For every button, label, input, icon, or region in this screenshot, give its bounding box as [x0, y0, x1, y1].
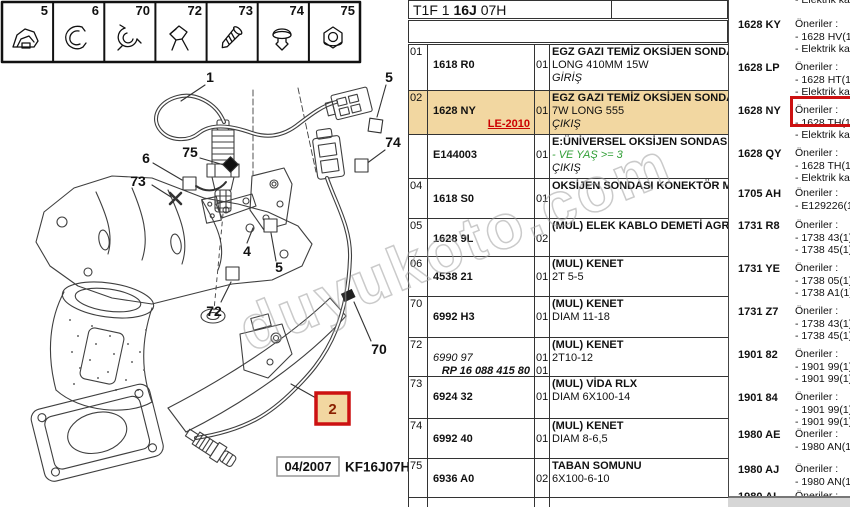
quantity: 02 — [536, 233, 549, 246]
description-line: TABAN SOMUNU — [552, 460, 740, 473]
description-line: DIAM 8-6,5 — [552, 433, 740, 446]
suggestion-code: 1901 82 — [738, 349, 778, 361]
quantity — [536, 378, 549, 391]
spacer — [433, 92, 532, 105]
quantity: 01 — [536, 193, 549, 206]
description-line: (MUL) KENET — [552, 339, 740, 352]
callout-2-highlighted[interactable]: 2 — [316, 393, 349, 424]
parts-table-rows: 011618 R001EGZ GAZI TEMİZ OKSİJEN SONDAS… — [408, 44, 742, 507]
icon-strip: 5 6 70 72 73 74 75 — [2, 2, 360, 62]
suggestion-code: 1980 AJ — [738, 464, 779, 476]
suggestion-code: 1901 84 — [738, 392, 778, 404]
suggestion-partial-top: - Elektrik kablo — [795, 0, 850, 6]
description-line: 7W LONG 555 — [552, 105, 740, 118]
part-reference: 6990 97 — [433, 352, 532, 365]
header-divider — [611, 1, 612, 18]
oxygen-sensor-upper — [207, 120, 239, 310]
suggestion-line: - 1901 99(1) O — [795, 373, 850, 386]
description-line: (MUL) VİDA RLX — [552, 378, 740, 391]
suggestion-line: - 1738 45(1) + — [795, 330, 850, 343]
row-number: 05 — [410, 220, 425, 233]
icon-number: 5 — [41, 3, 48, 18]
header-code-part3: 07H — [481, 2, 507, 18]
quantity: 01 — [536, 311, 549, 324]
part-reference-extra: RP 16 088 415 80 — [433, 365, 532, 376]
suggestion-code: 1731 Z7 — [738, 306, 778, 318]
catalytic-converter — [29, 277, 165, 484]
suggestion-line: - 1628 HV(1) — [795, 31, 850, 44]
table-row[interactable]: 746992 4001(MUL) KENETDIAM 8-6,5 — [408, 419, 742, 459]
part-reference: 1628 NY — [433, 105, 532, 118]
spacer — [433, 378, 532, 391]
suggestion-line: - Elektrik kablo — [795, 129, 850, 142]
description-line: ÇIKIŞ — [552, 118, 740, 131]
quantity: 01 — [536, 59, 549, 72]
description-line: 2T10-12 — [552, 352, 740, 365]
callout-72[interactable]: 72 — [206, 303, 222, 319]
icon-number: 73 — [239, 3, 253, 18]
description-line: GİRİŞ — [552, 72, 740, 85]
description-line: (MUL) KENET — [552, 298, 740, 311]
table-row[interactable]: 064538 2101(MUL) KENET2T 5-5 — [408, 257, 742, 297]
part-reference: 6992 H3 — [433, 311, 532, 324]
suggestion-line: Öneriler : — [795, 147, 850, 160]
callout-5a[interactable]: 5 — [385, 69, 393, 85]
suggestion-line: Öneriler : — [795, 61, 850, 74]
quantity: 01 — [536, 271, 549, 284]
sensor-cable-upper — [156, 96, 336, 139]
clip-symbol — [355, 159, 368, 172]
callout-1[interactable]: 1 — [206, 69, 214, 85]
row-number: 04 — [410, 180, 425, 193]
suggestion-line: - 1738 A1(1) O — [795, 287, 850, 300]
suggestion-line: - 1628 HT(1) — [795, 74, 850, 87]
suggestion-line: - 1738 43(1) + — [795, 318, 850, 331]
quantity — [536, 258, 549, 271]
suggestion-code: 1628 LP — [738, 62, 780, 74]
row-number: 74 — [410, 420, 425, 433]
suggestion-code: 1731 R8 — [738, 220, 780, 232]
le-2010-link[interactable]: LE-2010 — [433, 118, 532, 131]
description-line: EGZ GAZI TEMİZ OKSİJEN SONDASI — [552, 92, 740, 105]
part-reference: 4538 21 — [433, 271, 532, 284]
callout-6[interactable]: 6 — [142, 150, 150, 166]
description-line: (MUL) KENET — [552, 420, 740, 433]
suggestion-line: Öneriler : — [795, 187, 850, 200]
table-row[interactable]: 011618 R001EGZ GAZI TEMİZ OKSİJEN SONDAS… — [408, 45, 742, 91]
part-reference: E144003 — [433, 149, 532, 162]
quantity — [536, 298, 549, 311]
description-line: DIAM 6X100-14 — [552, 391, 740, 404]
date-text: 04/2007 — [285, 459, 332, 474]
spacer — [433, 258, 532, 271]
header-code-part2: 16J — [453, 2, 476, 18]
suggestion-line: - 1980 AN(1) 2 — [795, 476, 850, 489]
suggestion-line: - 1738 05(1) K — [795, 275, 850, 288]
icon-number: 74 — [290, 3, 305, 18]
table-row[interactable]: 756936 A002TABAN SOMUNU6X100-6-10 — [408, 459, 742, 498]
suggestion-code: 1628 QY — [738, 148, 781, 160]
spacer — [433, 420, 532, 433]
table-row[interactable]: 736924 3201(MUL) VİDA RLXDIAM 6X100-14 — [408, 377, 742, 419]
quantity: 01 — [536, 352, 549, 365]
quantity: 01 — [536, 433, 549, 446]
table-row[interactable]: 051628 9L02(MUL) ELEK KABLO DEMETİ AGRAF… — [408, 219, 742, 257]
mounting-bracket — [202, 88, 316, 230]
callout-74[interactable]: 74 — [385, 134, 401, 150]
row-number: 01 — [410, 46, 425, 59]
suggestion-code: 1980 AE — [738, 429, 780, 441]
quantity — [536, 136, 549, 149]
quantity: 01 — [536, 149, 549, 162]
part-reference: 6992 40 — [433, 433, 532, 446]
suggestion-code: 1628 NY — [738, 105, 781, 117]
cable-clip-icon — [118, 25, 141, 50]
retainer-clip-icon — [13, 29, 38, 48]
suggestion-code: 1705 AH — [738, 188, 781, 200]
suggestion-line: Öneriler : — [795, 490, 838, 498]
description-line: 6X100-6-10 — [552, 473, 740, 486]
part-reference: 6924 32 — [433, 391, 532, 404]
part-reference: 1618 S0 — [433, 193, 532, 206]
callout-75[interactable]: 75 — [182, 144, 198, 160]
quantity — [536, 460, 549, 473]
suggestion-line: Öneriler : — [795, 305, 850, 318]
row-number: 75 — [410, 460, 425, 473]
clip-symbol — [368, 118, 383, 133]
table-subheader-empty — [408, 20, 728, 43]
description-line: (MUL) ELEK KABLO DEMETİ AGRAFI — [552, 220, 740, 233]
suggestion-line: Öneriler : — [795, 348, 850, 361]
suggestion-code: 1731 YE — [738, 263, 780, 275]
quantity — [536, 420, 549, 433]
table-row[interactable]: 726990 97RP 16 088 415 800101(MUL) KENET… — [408, 338, 742, 377]
callout-5b[interactable]: 5 — [275, 259, 283, 275]
description-line: ÇIKIŞ — [552, 162, 740, 175]
description-line: EGZ GAZI TEMİZ OKSİJEN SONDASI — [552, 46, 740, 59]
description-line: DIAM 11-18 — [552, 311, 740, 324]
quantity — [536, 92, 549, 105]
suggestion-line: Öneriler : — [795, 428, 850, 441]
suggestion-code: 1980 AL — [738, 491, 780, 498]
suggestion-line: - 1901 99(1) + — [795, 361, 850, 374]
row-number: 70 — [410, 298, 425, 311]
table-row[interactable]: E14400301E:ÜNİVERSEL OKSİJEN SONDASI- VE… — [408, 135, 742, 179]
description-line: (MUL) KENET — [552, 258, 740, 271]
flange-nut-icon — [324, 27, 342, 48]
row-number: 72 — [410, 339, 425, 352]
part-reference: 1628 9L — [433, 233, 532, 246]
clip-symbol — [226, 267, 239, 280]
suggestion-line: - Elektrik kablo — [795, 172, 850, 185]
spacer — [433, 136, 532, 149]
diagram-code: KF16J07H — [345, 460, 408, 475]
description-line: 2T 5-5 — [552, 271, 740, 284]
callout-4[interactable]: 4 — [243, 243, 251, 259]
spacer — [433, 220, 532, 233]
suggestion-highlight-box — [790, 96, 850, 127]
parts-table: T1F 1 16J 07H 011618 R001EGZ GAZI TEMİZ … — [408, 0, 742, 507]
suggestion-line: - 1901 99(1) O — [795, 416, 850, 429]
exploded-parts-diagram: 5 6 70 72 73 74 75 — [0, 0, 408, 507]
suggestion-line: - 1628 TH(1) — [795, 160, 850, 173]
spacer — [433, 298, 532, 311]
suggestion-line: Öneriler : — [795, 463, 850, 476]
icon-number: 6 — [92, 3, 99, 18]
table-row[interactable]: 706992 H301(MUL) KENETDIAM 11-18 — [408, 297, 742, 338]
diamond-symbol-75 — [223, 157, 239, 173]
icon-number: 75 — [341, 3, 355, 18]
row-number — [410, 136, 425, 149]
quantity — [536, 46, 549, 59]
icon-number: 70 — [136, 3, 150, 18]
table-row-partial — [408, 498, 742, 507]
suggestion-line: - 1980 AN(1) 2 — [795, 441, 850, 454]
suggestion-line: - 1738 43(1) + — [795, 232, 850, 245]
suggestion-line: - E129226(1) — [795, 200, 850, 213]
screw-icon — [219, 25, 243, 51]
quantity — [536, 220, 549, 233]
parts-catalog-screen: 5 6 70 72 73 74 75 — [0, 0, 850, 507]
description-line: OKSİJEN SONDASI KONEKTÖR MESN — [552, 180, 740, 193]
header-code-part1: T1F 1 — [413, 2, 450, 18]
quantity — [536, 339, 549, 352]
quantity — [536, 180, 549, 193]
spacer — [433, 180, 532, 193]
spacer — [433, 339, 532, 352]
clip-wire-6 — [196, 182, 226, 190]
suggestions-popup: - Elektrik kablo 1628 KYÖneriler :- 1628… — [728, 0, 850, 498]
popup-bottom-strip — [728, 498, 850, 507]
svg-text:2: 2 — [328, 401, 336, 418]
quantity: 01 — [536, 365, 549, 376]
suggestion-line: Öneriler : — [795, 219, 850, 232]
icon-number: 72 — [188, 3, 202, 18]
table-row[interactable]: 041618 S001OKSİJEN SONDASI KONEKTÖR MESN — [408, 179, 742, 219]
table-row[interactable]: 021628 NYLE-201001EGZ GAZI TEMİZ OKSİJEN… — [408, 91, 742, 135]
callout-73[interactable]: 73 — [130, 173, 146, 189]
push-rivet-icon — [273, 29, 291, 50]
suggestion-code: 1628 KY — [738, 19, 781, 31]
suggestion-line: - 1901 99(1) + — [795, 404, 850, 417]
part-reference: 6936 A0 — [433, 473, 532, 486]
suggestion-line: Öneriler : — [795, 18, 850, 31]
spacer — [433, 460, 532, 473]
clip-symbol — [183, 177, 196, 190]
row-number: 06 — [410, 258, 425, 271]
wire-bracket-icon — [170, 26, 188, 50]
suggestion-line: - 1738 45(1) + — [795, 244, 850, 257]
suggestion-line: Öneriler : — [795, 391, 850, 404]
suggestion-line: - Elektrik kablo — [795, 43, 850, 56]
part-reference: 1618 R0 — [433, 59, 532, 72]
table-header: T1F 1 16J 07H — [408, 0, 728, 19]
description-line: - VE YAŞ >= 3 — [552, 149, 740, 162]
quantity: 02 — [536, 473, 549, 486]
quantity: 01 — [536, 105, 549, 118]
description-line: E:ÜNİVERSEL OKSİJEN SONDASI — [552, 136, 740, 149]
description-line: LONG 410MM 15W — [552, 59, 740, 72]
spacer — [433, 46, 532, 59]
clip-symbol — [264, 219, 277, 232]
suggestion-line: Öneriler : — [795, 262, 850, 275]
quantity: 01 — [536, 391, 549, 404]
row-number: 02 — [410, 92, 425, 105]
callout-70[interactable]: 70 — [371, 341, 387, 357]
spring-clip-icon — [66, 26, 86, 48]
row-number: 73 — [410, 378, 425, 391]
